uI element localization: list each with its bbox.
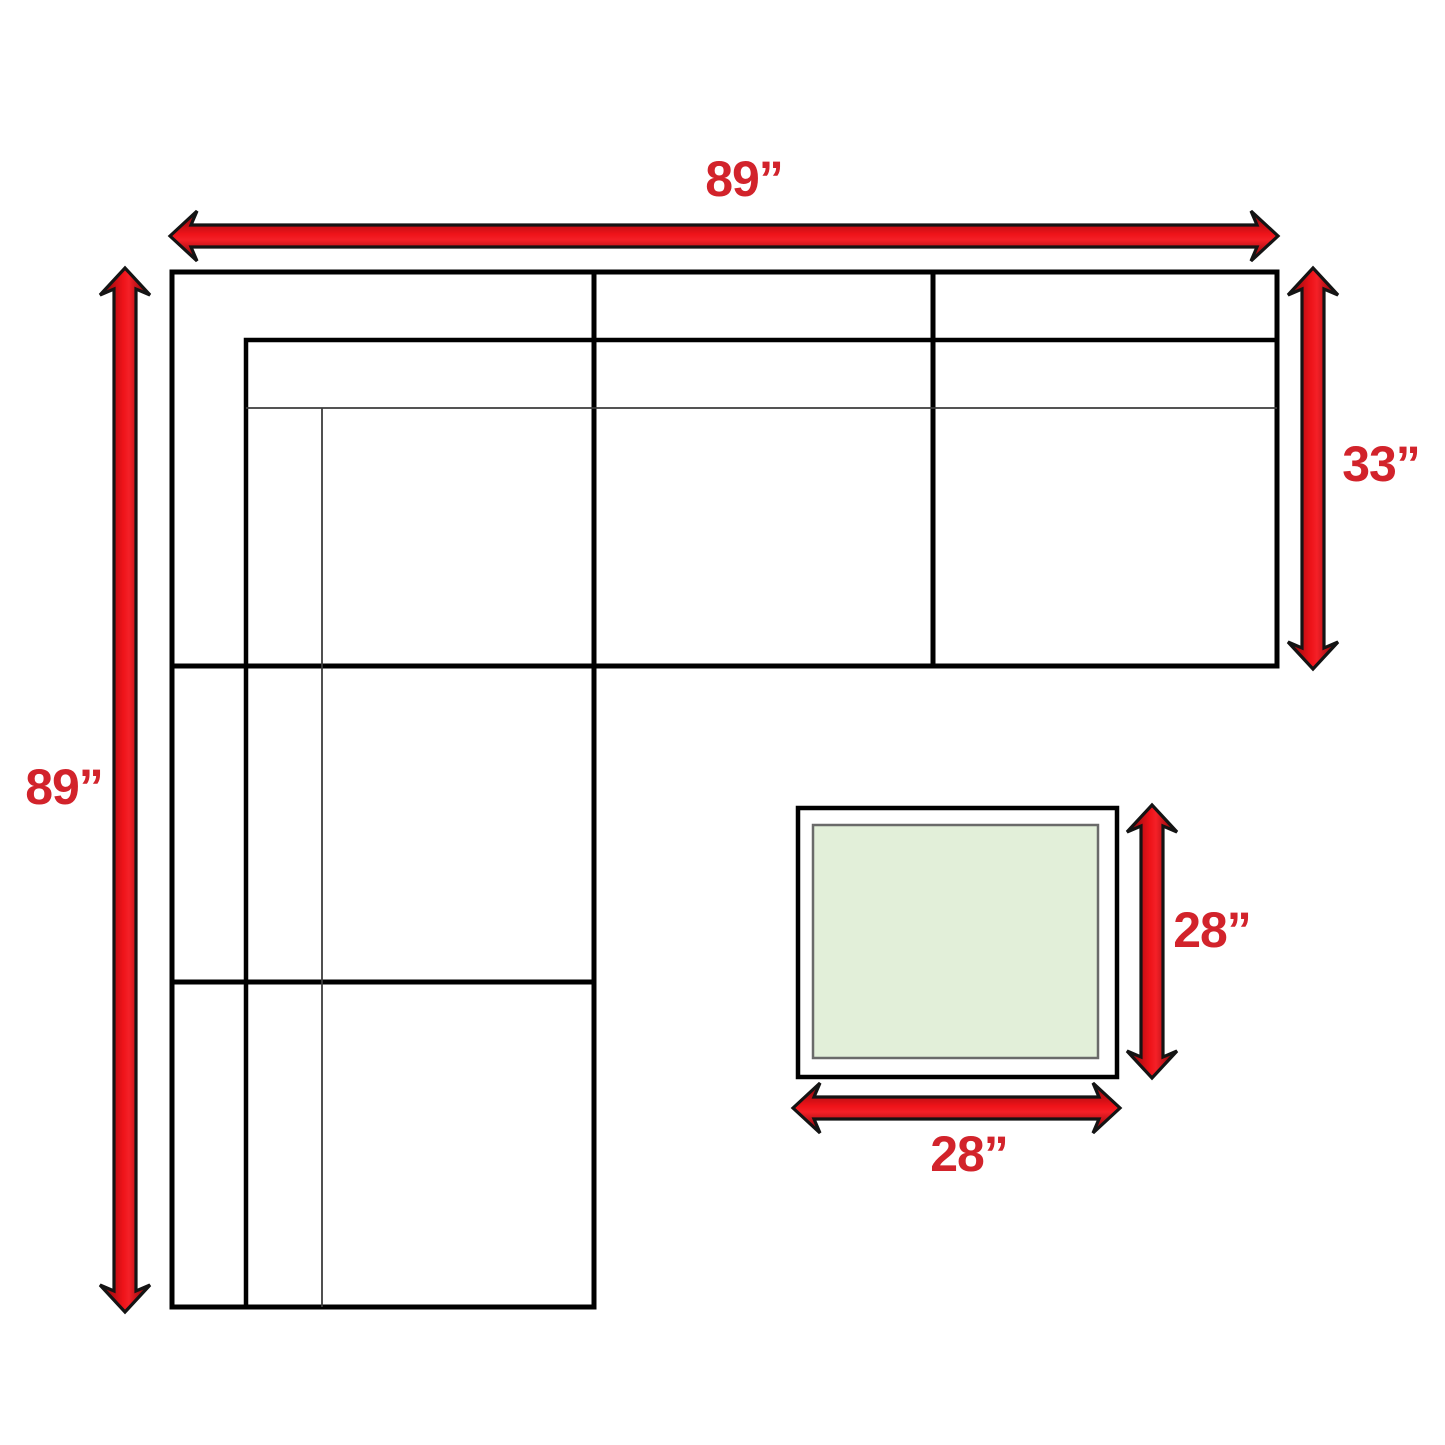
dimension-arrow-ottoman-height [1127, 805, 1177, 1078]
dimension-arrow-sofa-depth [1288, 268, 1338, 669]
sofa-depth-label: 33” [1342, 435, 1420, 493]
furniture-dimension-diagram: 89” 89” 33” 28” 28” [0, 0, 1445, 1445]
sectional-outer-edge [172, 272, 1277, 1307]
ottoman-top-surface [813, 825, 1098, 1058]
ottoman-width-label: 28” [930, 1125, 1008, 1183]
sofa-height-label: 89” [25, 758, 103, 816]
sofa-width-label: 89” [705, 150, 783, 208]
sectional-sofa-outline [172, 272, 1277, 1307]
dimension-arrow-sofa-height [100, 268, 150, 1312]
dimension-arrow-sofa-width [170, 211, 1278, 261]
diagram-canvas [0, 0, 1445, 1445]
ottoman-height-label: 28” [1173, 901, 1251, 959]
ottoman-outline [798, 808, 1117, 1077]
